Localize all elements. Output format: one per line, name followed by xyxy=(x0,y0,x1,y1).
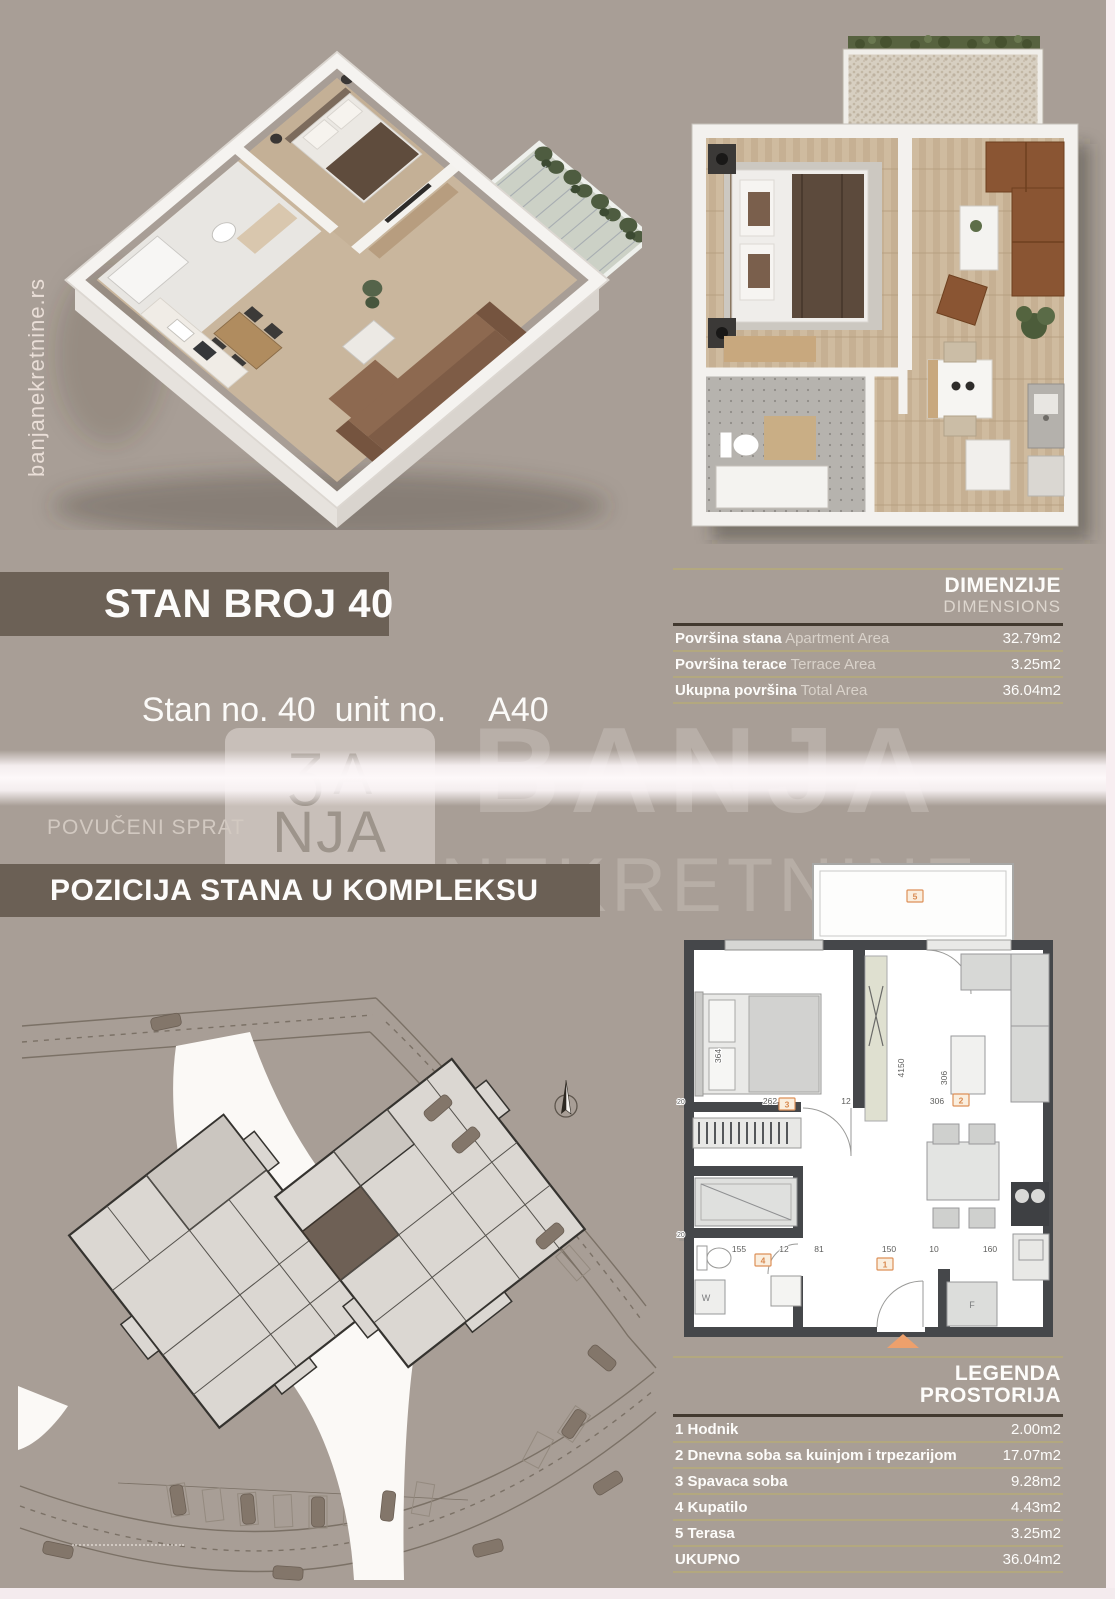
floor-label: POVUČENI SPRAT xyxy=(47,816,245,840)
washer-label: W xyxy=(702,1293,711,1303)
page-fold-band xyxy=(0,750,1115,806)
svg-text:4150: 4150 xyxy=(896,1058,906,1077)
position-heading-bar: POZICIJA STANA U KOMPLEKSU xyxy=(0,864,600,917)
floor-plan-cad: W F 262 12 306 155 12 81 150 10 160 364 … xyxy=(675,856,1107,1352)
fridge-label: F xyxy=(969,1300,975,1310)
svg-text:20: 20 xyxy=(677,1099,685,1106)
legend-table: LEGENDA PROSTORIJA 1 Hodnik 2.00m2 2 Dne… xyxy=(673,1356,1063,1573)
table-row: 5 Terasa 3.25m2 xyxy=(673,1521,1063,1547)
svg-text:5: 5 xyxy=(913,892,918,902)
table-row: UKUPNO 36.04m2 xyxy=(673,1547,1063,1573)
svg-text:262: 262 xyxy=(763,1096,777,1106)
svg-text:155: 155 xyxy=(732,1244,746,1254)
table-row: 4 Kupatilo 4.43m2 xyxy=(673,1495,1063,1521)
marker-living: 2 xyxy=(953,1094,969,1106)
render-3d-isometric xyxy=(30,14,642,530)
brochure-page: banjanekretnine.rs xyxy=(0,0,1115,1599)
svg-text:306: 306 xyxy=(939,1071,949,1085)
unit-title-bar: STAN BROJ 40 xyxy=(0,572,389,636)
legend-title-2: PROSTORIJA xyxy=(673,1385,1061,1407)
svg-text:150: 150 xyxy=(882,1244,896,1254)
table-row: Površina stana Apartment Area 32.79m2 xyxy=(673,626,1063,652)
marker-bathroom: 4 xyxy=(755,1254,771,1266)
legend-title-1: LEGENDA xyxy=(673,1363,1061,1385)
unit-title: STAN BROJ 40 xyxy=(0,572,389,636)
svg-text:20: 20 xyxy=(677,1232,685,1239)
terrace-door xyxy=(927,940,1011,950)
marker-terrace: 5 xyxy=(907,890,923,902)
bedroom-2d xyxy=(708,144,882,362)
marker-bedroom: 3 xyxy=(779,1098,795,1110)
plan-terrace xyxy=(813,864,1013,943)
svg-text:3: 3 xyxy=(785,1100,790,1110)
svg-text:2: 2 xyxy=(959,1096,964,1106)
compass-icon xyxy=(555,1080,577,1117)
render-2d-topdown xyxy=(660,22,1108,544)
position-heading: POZICIJA STANA U KOMPLEKSU xyxy=(0,864,600,917)
tiny-caption xyxy=(72,1544,184,1546)
svg-text:364: 364 xyxy=(713,1049,723,1063)
iso-apartment xyxy=(65,14,642,508)
svg-text:81: 81 xyxy=(814,1244,824,1254)
svg-text:10: 10 xyxy=(929,1244,939,1254)
svg-text:4: 4 xyxy=(761,1256,766,1266)
svg-text:306: 306 xyxy=(930,1096,944,1106)
site-plan xyxy=(18,938,658,1583)
terrace-2d xyxy=(843,35,1043,129)
dimensions-table: DIMENZIJE DIMENSIONS Površina stana Apar… xyxy=(673,558,1063,704)
dimensions-title-en: DIMENSIONS xyxy=(673,597,1061,616)
photo-border-right xyxy=(1106,0,1115,1599)
unit-subtitle-label: Stan no. 40 unit no. xyxy=(142,691,446,729)
svg-text:12: 12 xyxy=(779,1244,789,1254)
table-row: Površina terace Terrace Area 3.25m2 xyxy=(673,652,1063,678)
dimensions-title-sr: DIMENZIJE xyxy=(673,575,1061,597)
window xyxy=(725,940,823,950)
photo-border-bottom xyxy=(0,1588,1115,1599)
table-row: 1 Hodnik 2.00m2 xyxy=(673,1417,1063,1443)
svg-text:12: 12 xyxy=(841,1096,851,1106)
table-row: 3 Spavaca soba 9.28m2 xyxy=(673,1469,1063,1495)
svg-text:1: 1 xyxy=(883,1260,888,1270)
marker-hall: 1 xyxy=(877,1258,893,1270)
table-row: 2 Dnevna soba sa kuinjom i trpezarijom 1… xyxy=(673,1443,1063,1469)
svg-text:160: 160 xyxy=(983,1244,997,1254)
